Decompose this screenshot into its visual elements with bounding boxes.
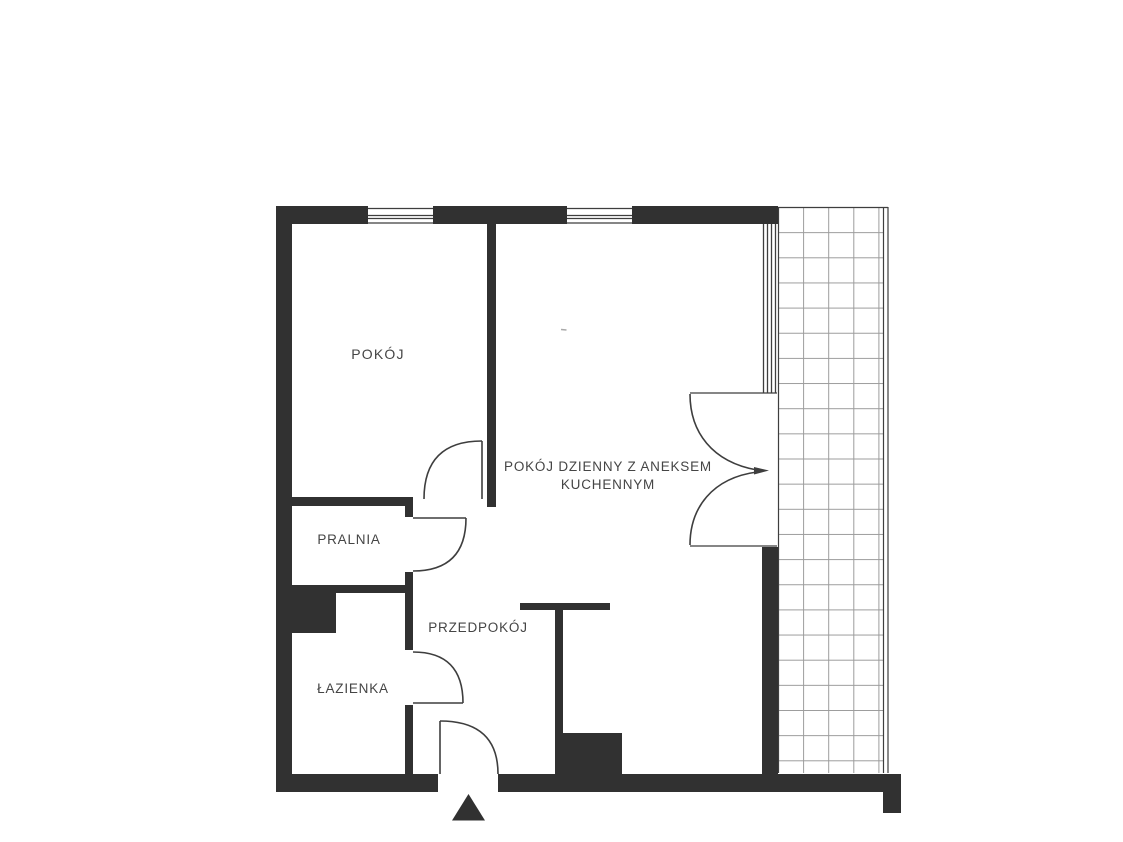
room-label-pokoj: POKÓJ <box>351 345 404 363</box>
room-label-living-line1: POKÓJ DZIENNY Z ANEKSEM <box>504 458 712 476</box>
wall-hall-vertical-segment <box>405 572 413 650</box>
wall-hall-vertical-segment <box>405 506 413 517</box>
wall-bottom-right-stub <box>883 792 901 813</box>
door-lazienka <box>413 652 463 703</box>
wall-t-block <box>555 733 622 774</box>
wall-bottom-segment <box>498 774 901 792</box>
wall-top-segment <box>632 206 778 224</box>
print-artifact-dash <box>561 330 567 331</box>
window-pokoj <box>368 209 433 224</box>
wall-pokoj-living-divider <box>487 224 496 507</box>
wall-top-segment <box>433 206 567 224</box>
doors <box>413 394 757 774</box>
door-entrance <box>440 721 498 774</box>
room-label-lazienka: ŁAZIENKA <box>317 680 389 698</box>
wall-pralnia-bottom <box>276 585 405 593</box>
room-label-pralnia: PRALNIA <box>317 531 380 549</box>
door-pralnia <box>413 518 466 571</box>
room-label-living: POKÓJ DZIENNY Z ANEKSEM KUCHENNYM <box>504 458 712 494</box>
wall-t-stem <box>555 610 563 733</box>
balcony <box>778 207 888 773</box>
wall-hall-vertical-segment <box>405 705 413 774</box>
room-label-przedpokoj: PRZEDPOKÓJ <box>428 619 528 637</box>
wall-bottom-segment <box>276 774 438 792</box>
floor-plan-canvas: POKÓJ POKÓJ DZIENNY Z ANEKSEM KUCHENNYM … <box>0 0 1123 842</box>
wall-t-bar <box>520 603 610 610</box>
wall-right-lower <box>762 547 778 774</box>
balcony-tile-grid <box>778 207 883 773</box>
window-glass-wall-balcony <box>764 224 776 393</box>
wall-shaft-block <box>276 593 336 633</box>
wall-pokoj-bottom <box>276 497 413 506</box>
entrance-triangle-icon <box>452 794 485 821</box>
windows <box>368 209 777 547</box>
floor-plan-drawing <box>0 0 1123 842</box>
room-label-living-line2: KUCHENNYM <box>504 476 712 494</box>
door-pokoj <box>424 441 482 499</box>
window-living <box>567 209 632 224</box>
balcony-door-arrow-icon <box>754 467 769 475</box>
